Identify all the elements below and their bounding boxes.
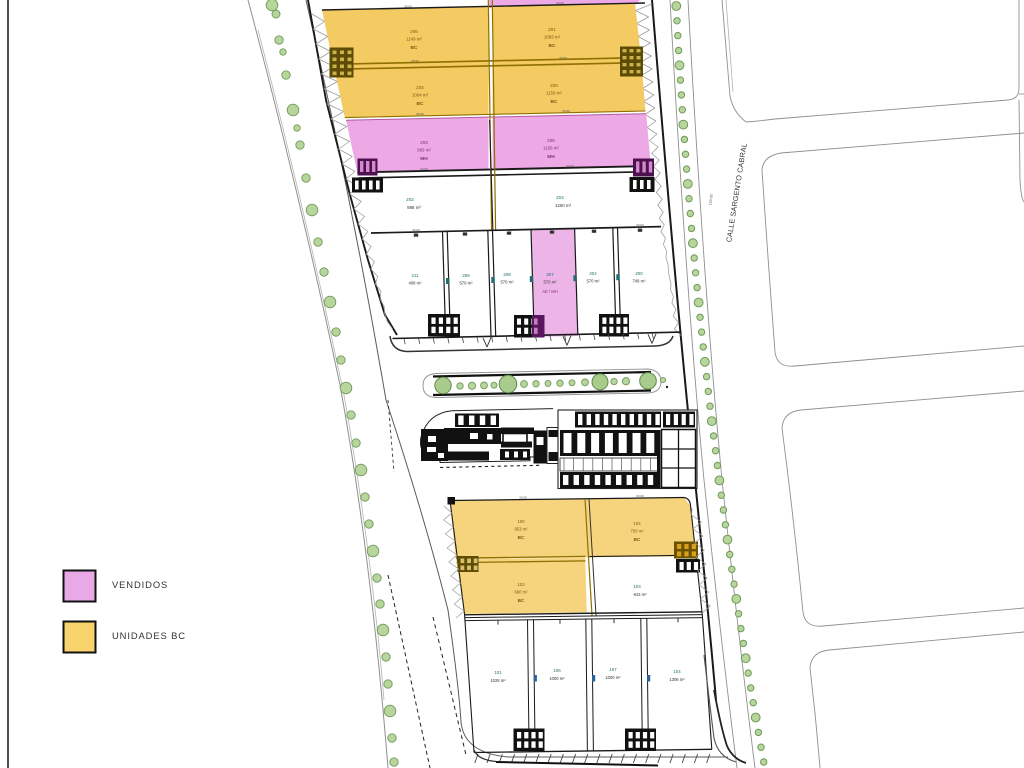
svg-text:201: 201 (548, 27, 556, 32)
svg-text:30.00: 30.00 (559, 56, 567, 60)
svg-text:570 m²: 570 m² (500, 280, 514, 285)
svg-text:102: 102 (517, 582, 525, 587)
svg-text:MH: MH (420, 156, 428, 162)
svg-text:VENDIDOS: VENDIDOS (112, 579, 168, 590)
svg-text:205: 205 (547, 138, 555, 143)
svg-text:1156 m²: 1156 m² (543, 146, 559, 151)
svg-text:988 m²: 988 m² (407, 205, 421, 210)
svg-text:101: 101 (494, 670, 502, 675)
svg-text:UNIDADES BC: UNIDADES BC (112, 630, 186, 641)
svg-text:30.00: 30.00 (411, 59, 419, 63)
svg-text:204: 204 (416, 85, 424, 90)
svg-text:690 m²: 690 m² (514, 590, 528, 595)
svg-text:104: 104 (633, 521, 641, 526)
svg-text:100: 100 (517, 519, 525, 524)
svg-text:1158 m²: 1158 m² (546, 91, 562, 96)
svg-text:570 m²: 570 m² (586, 279, 600, 284)
svg-text:1064 m²: 1064 m² (412, 93, 429, 98)
svg-text:30.00: 30.00 (562, 109, 570, 113)
svg-text:843 m²: 843 m² (633, 592, 647, 597)
svg-text:1000 m²: 1000 m² (549, 676, 565, 681)
svg-text:30.00: 30.00 (556, 1, 564, 5)
svg-text:30.00: 30.00 (416, 112, 424, 116)
svg-text:BC: BC (518, 598, 525, 603)
svg-text:BC: BC (411, 45, 418, 51)
svg-text:106: 106 (553, 668, 561, 673)
svg-text:104: 104 (673, 669, 681, 674)
svg-text:209: 209 (462, 273, 470, 278)
svg-text:1028 m²: 1028 m² (490, 678, 506, 683)
svg-text:408 m²: 408 m² (408, 281, 422, 286)
svg-text:207: 207 (546, 272, 554, 277)
svg-text:BC: BC (417, 101, 424, 107)
svg-text:204: 204 (556, 195, 564, 200)
svg-text:AE / MH: AE / MH (542, 289, 558, 294)
svg-text:211: 211 (412, 273, 420, 278)
svg-text:200: 200 (550, 83, 558, 88)
svg-text:983 m²: 983 m² (417, 148, 431, 153)
svg-text:748 m²: 748 m² (632, 279, 646, 284)
svg-text:1250 m²: 1250 m² (555, 203, 572, 208)
svg-text:30.00: 30.00 (420, 167, 428, 171)
svg-text:BC: BC (551, 99, 558, 105)
svg-text:1149 m²: 1149 m² (406, 37, 422, 42)
svg-text:BC: BC (549, 43, 556, 49)
svg-text:107: 107 (609, 667, 617, 672)
svg-text:BC: BC (634, 537, 641, 542)
svg-text:203: 203 (420, 140, 428, 145)
svg-text:30.00: 30.00 (566, 164, 574, 168)
svg-text:103: 103 (633, 584, 641, 589)
svg-text:202: 202 (406, 197, 414, 202)
svg-text:1083 m²: 1083 m² (544, 35, 561, 40)
svg-text:BC: BC (518, 535, 525, 540)
svg-text:1000 m²: 1000 m² (605, 675, 621, 680)
svg-text:570 m²: 570 m² (543, 280, 557, 285)
svg-text:200: 200 (635, 271, 643, 276)
svg-text:570 m²: 570 m² (459, 281, 473, 286)
svg-text:206: 206 (410, 29, 418, 34)
svg-text:204: 204 (589, 271, 597, 276)
svg-text:793 m²: 793 m² (630, 529, 644, 534)
svg-text:1306 m²: 1306 m² (669, 677, 685, 682)
svg-text:208: 208 (503, 272, 511, 277)
svg-text:30.00: 30.00 (404, 5, 412, 9)
svg-text:MH: MH (547, 154, 555, 160)
svg-text:953 m²: 953 m² (514, 527, 528, 532)
